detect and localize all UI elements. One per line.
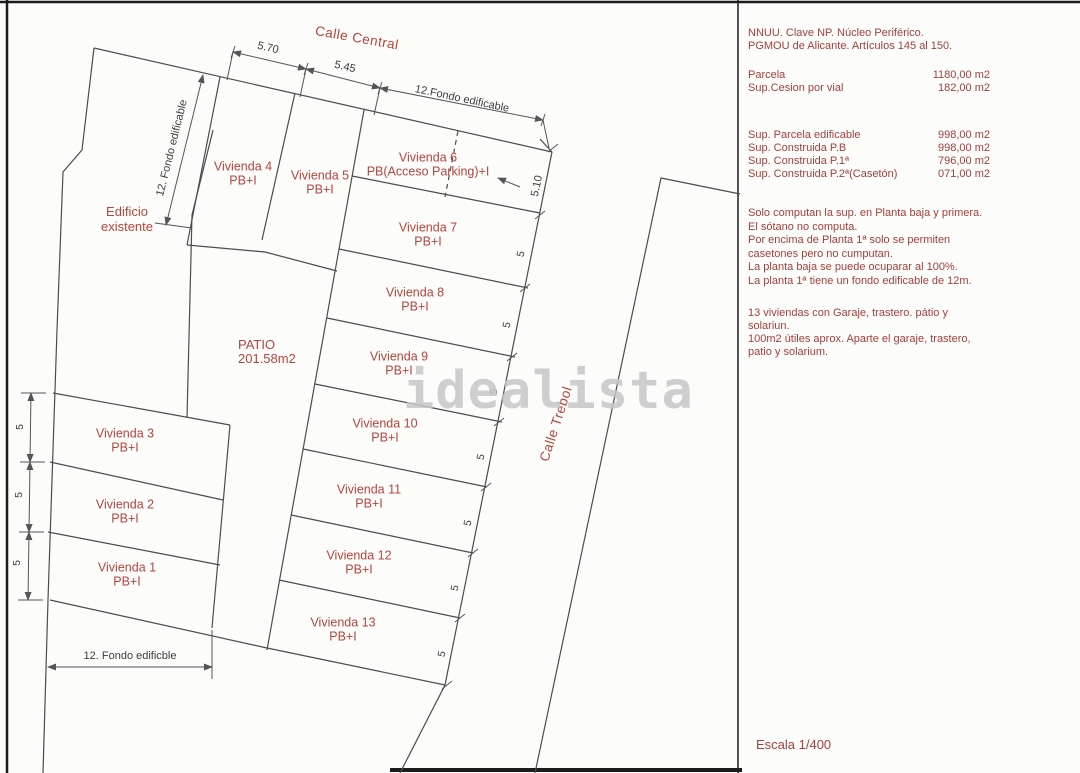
plot-type: PB+I — [399, 235, 457, 249]
idealista-watermark: idealista — [403, 361, 688, 421]
plot-name: Vivienda 6 — [367, 151, 490, 165]
plot-label-vivienda-12: Vivienda 12PB+I — [326, 549, 391, 578]
plot-type: PB+I — [310, 630, 375, 644]
plot-label-vivienda-5: Vivienda 5PB+I — [291, 169, 349, 198]
plot-type: PB+I — [291, 183, 349, 197]
plot-name: Vivienda 4 — [214, 160, 272, 174]
surface-value: 796,00 m2 — [938, 155, 990, 168]
dim-5-left-2: 5 — [13, 492, 25, 498]
surface-label: Sup. Construida P.B — [748, 142, 846, 154]
notes-panel: NNUU. Clave NP. Núcleo Periférico. PGMOU… — [748, 27, 990, 359]
site-plan-page: idealista Calle Central Calle Trebol Viv… — [0, 0, 1080, 773]
plot-name: Vivienda 1 — [98, 561, 156, 575]
parcel-value: 1180,00 m2 — [933, 69, 990, 82]
plot-type: PB(Acceso Parking)+I — [367, 165, 490, 179]
dim-5-left-3: 5 — [11, 560, 23, 566]
plot-name: Vivienda 3 — [96, 427, 154, 441]
patio-area: 201.58m2 — [238, 352, 296, 366]
plot-label-vivienda-6: Vivienda 6PB(Acceso Parking)+I — [367, 151, 490, 180]
regulation-line-2: PGMOU de Alicante. Artículos 145 al 150. — [748, 40, 990, 53]
existing-building-label: Edificioexistente — [101, 205, 153, 235]
plot-type: PB+I — [96, 441, 154, 455]
top-dimension-chain — [227, 46, 549, 148]
plot-type: PB+I — [326, 563, 391, 577]
existing-building-line2: existente — [101, 220, 153, 235]
surface-row-2: Sup. Construida P.B998,00 m2 — [748, 142, 990, 155]
rule-line-4: La planta 1ª tiene un fondo edificable d… — [748, 275, 990, 289]
surface-label: Sup. Construida P.1ª — [748, 155, 849, 167]
dim-12-fondo-bottom: 12. Fondo edificble — [84, 650, 177, 662]
rule-line-3: La planta baja se puede ocuparar al 100%… — [748, 261, 990, 275]
cesion-row: Sup.Cesion por vial182,00 m2 — [748, 82, 990, 95]
surface-row-3: Sup. Construida P.1ª796,00 m2 — [748, 155, 990, 168]
surface-label: Sup. Parcela edificable — [748, 129, 861, 141]
cesion-value: 182,00 m2 — [938, 82, 990, 95]
plot-type: PB+I — [386, 300, 444, 314]
patio-label: PATIO201.58m2 — [238, 338, 296, 367]
plot-name: Vivienda 8 — [386, 286, 444, 300]
plot-name: Vivienda 7 — [399, 221, 457, 235]
plot-label-vivienda-11: Vivienda 11PB+I — [337, 483, 401, 512]
plot-type: PB+I — [96, 512, 154, 526]
surface-value: 998,00 m2 — [938, 129, 990, 142]
cesion-label: Sup.Cesion por vial — [748, 82, 843, 94]
plot-name: Vivienda 2 — [96, 498, 154, 512]
surface-value: 998,00 m2 — [938, 142, 990, 155]
surface-row-4: Sup. Construida P.2ª(Casetón)071,00 m2 — [748, 168, 990, 181]
summary-line-1: 13 viviendas con Garaje, trastero. pátio… — [748, 307, 990, 333]
plot-label-vivienda-2: Vivienda 2PB+I — [96, 498, 154, 527]
parcel-label: Parcela — [748, 69, 785, 81]
plot-label-vivienda-4: Vivienda 4PB+I — [214, 160, 272, 189]
plot-name: Vivienda 12 — [326, 549, 391, 563]
summary-block: 13 viviendas con Garaje, trastero. pátio… — [748, 307, 990, 359]
plot-label-vivienda-1: Vivienda 1PB+I — [98, 561, 156, 590]
plot-name: Vivienda 13 — [310, 616, 375, 630]
plot-type: PB+I — [98, 575, 156, 589]
parcel-row: Parcela1180,00 m2 — [748, 69, 990, 82]
surface-label: Sup. Construida P.2ª(Casetón) — [748, 168, 897, 180]
surface-value: 071,00 m2 — [938, 168, 990, 181]
surface-row-1: Sup. Parcela edificable998,00 m2 — [748, 129, 990, 142]
parking-direction-arrow-icon — [498, 178, 520, 187]
plot-label-vivienda-13: Vivienda 13PB+I — [310, 616, 375, 645]
dim-5-left-1: 5 — [14, 424, 26, 430]
patio-title: PATIO — [238, 338, 296, 352]
regulation-line-1: NNUU. Clave NP. Núcleo Periférico. — [748, 27, 990, 40]
scale-label: Escala 1/400 — [756, 737, 831, 752]
rule-line-2: Por encima de Planta 1ª solo se permiten… — [748, 234, 990, 261]
plot-type: PB+I — [337, 497, 401, 511]
plot-label-vivienda-7: Vivienda 7PB+I — [399, 221, 457, 250]
rules-block: Solo computan la sup. en Planta baja y p… — [748, 207, 990, 288]
existing-building-line1: Edificio — [101, 205, 153, 220]
plot-label-vivienda-8: Vivienda 8PB+I — [386, 286, 444, 315]
summary-line-2: 100m2 útiles aprox. Aparte el garaje, tr… — [748, 333, 990, 359]
plot-label-vivienda-3: Vivienda 3PB+I — [96, 427, 154, 456]
plot-name: Vivienda 11 — [337, 483, 401, 497]
plot-type: PB+I — [352, 431, 417, 445]
plot-name: Vivienda 5 — [291, 169, 349, 183]
rule-line-1: Solo computan la sup. en Planta baja y p… — [748, 207, 990, 234]
plot-type: PB+I — [214, 174, 272, 188]
